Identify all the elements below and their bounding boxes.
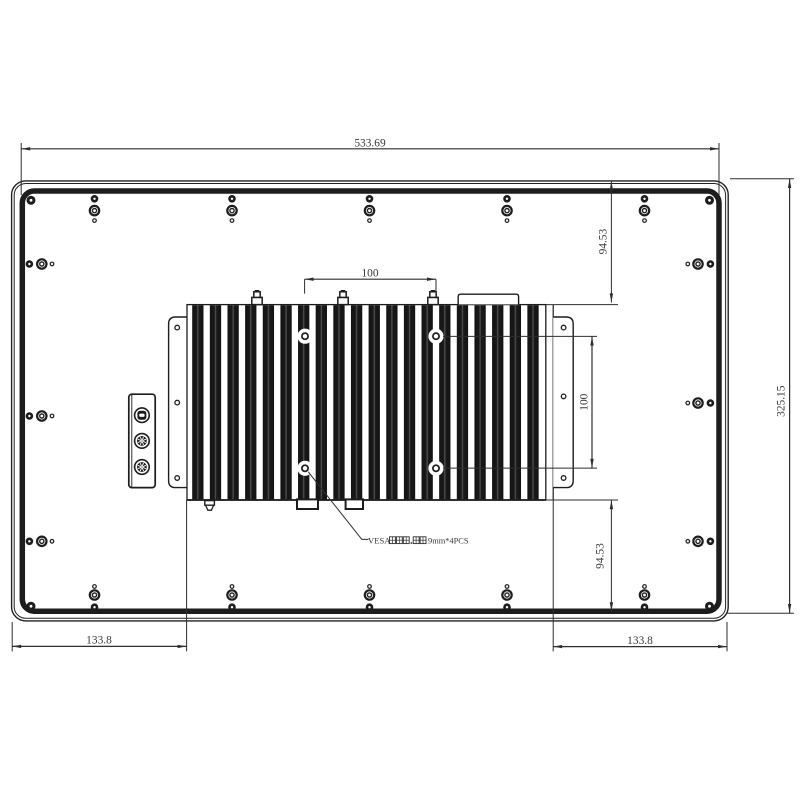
svg-text:325.15: 325.15	[776, 385, 788, 417]
svg-text:94.53: 94.53	[598, 228, 610, 254]
svg-text:133.8: 133.8	[86, 635, 112, 647]
svg-text:100: 100	[361, 268, 378, 280]
svg-text:133.8: 133.8	[627, 635, 653, 647]
svg-text:94.53: 94.53	[594, 543, 606, 569]
svg-text:100: 100	[579, 393, 591, 410]
svg-text:9mm*4PCS: 9mm*4PCS	[428, 537, 469, 546]
svg-text:533.69: 533.69	[354, 138, 386, 150]
svg-text:VESA: VESA	[368, 536, 391, 546]
